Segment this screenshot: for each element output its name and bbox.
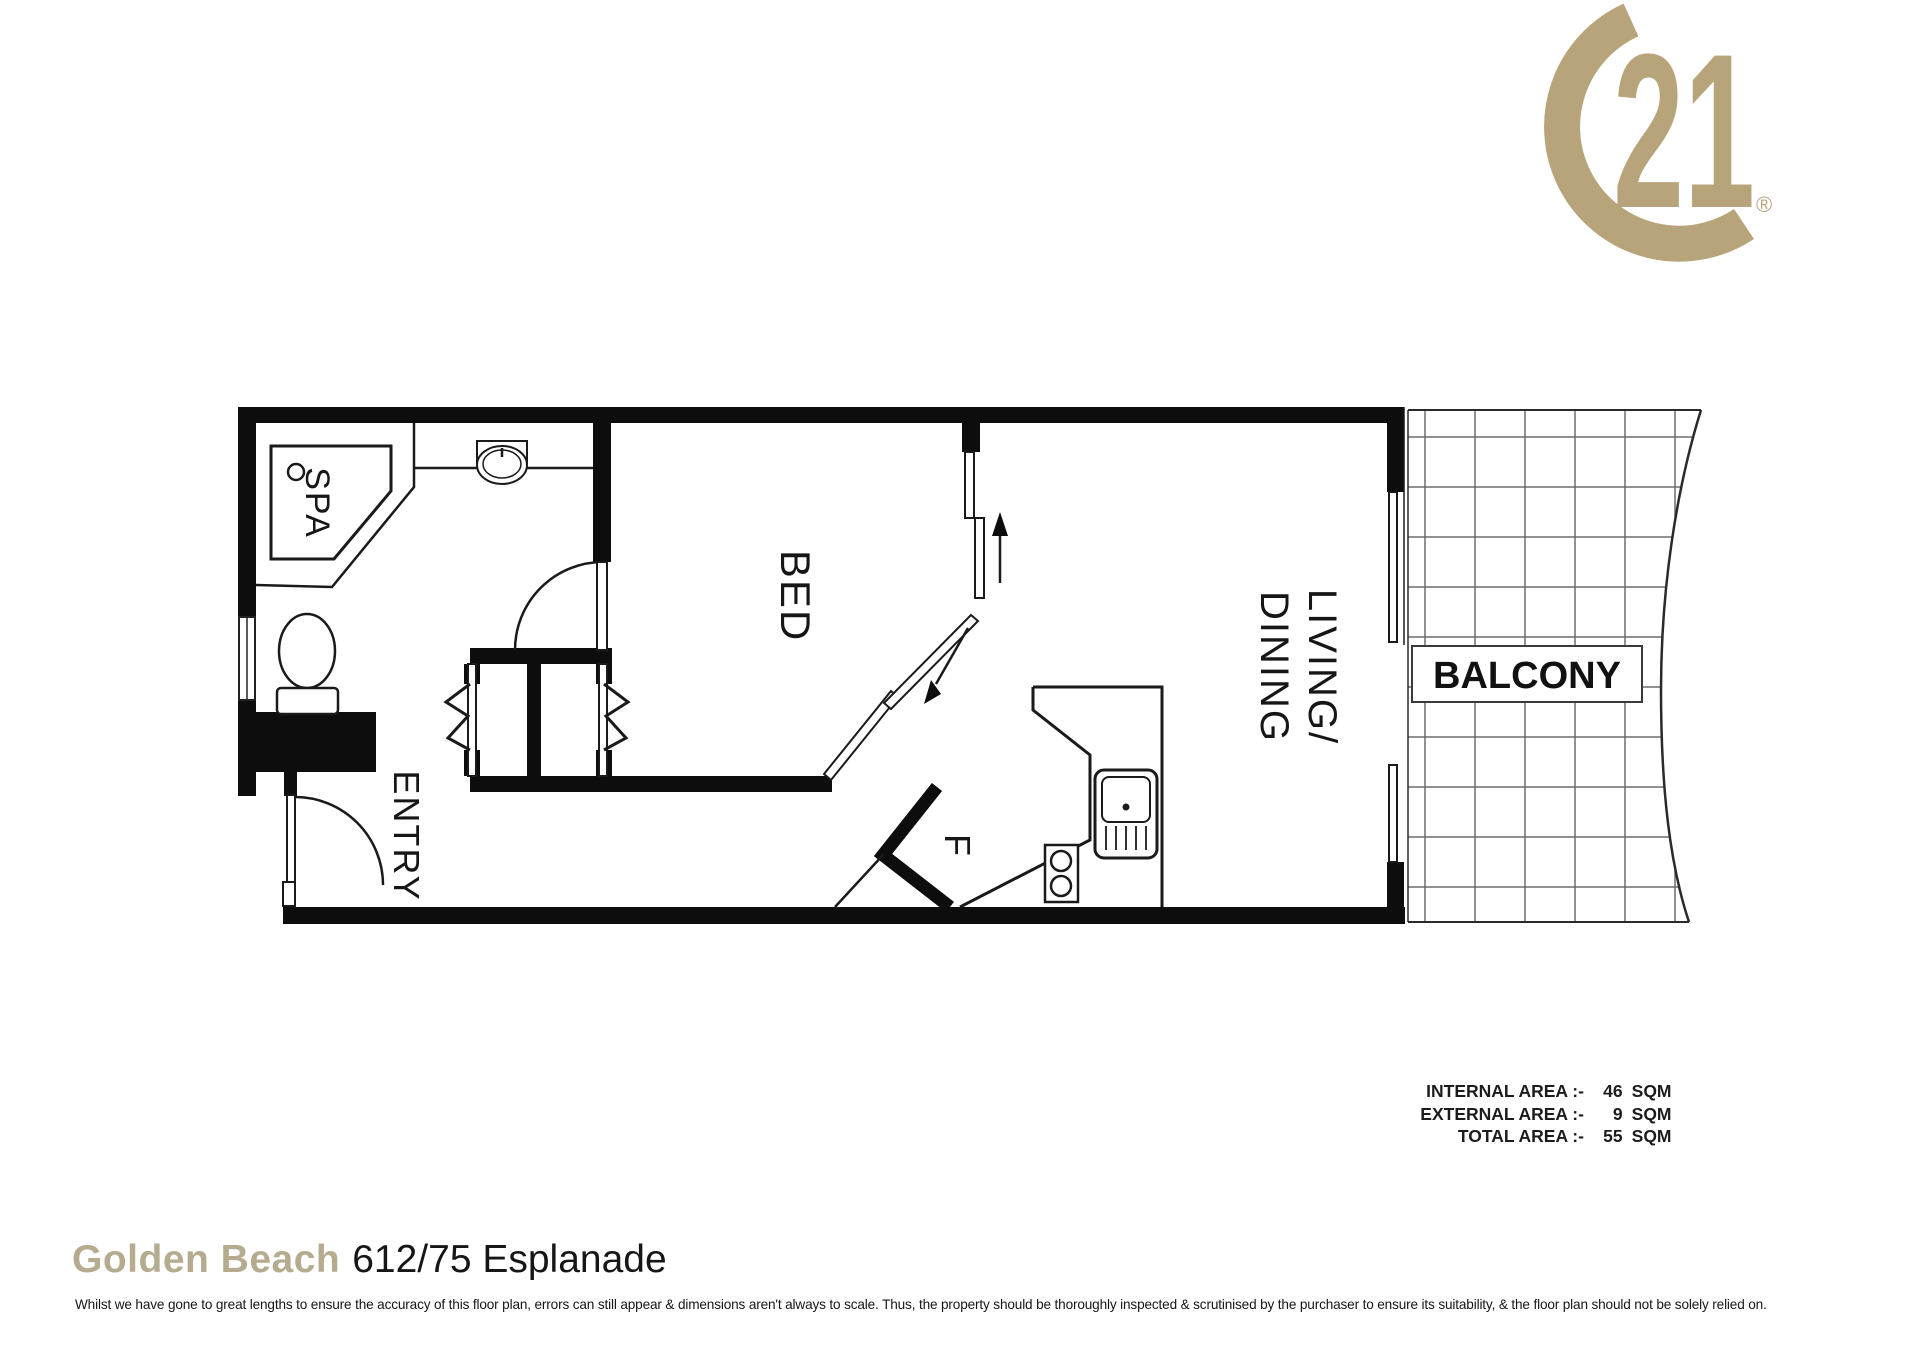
room-label-living-line1: LIVING/ xyxy=(1300,589,1344,745)
toilet xyxy=(277,614,338,714)
disclaimer-text: Whilst we have gone to great lengths to … xyxy=(75,1297,1865,1312)
bathroom-sink xyxy=(477,441,527,484)
area-value: 9 xyxy=(1584,1103,1623,1126)
street-address: 612/75 Esplanade xyxy=(352,1238,666,1282)
room-label-entry: ENTRY xyxy=(386,770,427,901)
arrow-up-icon xyxy=(992,512,1008,536)
balcony-door-lower xyxy=(1389,765,1397,862)
floorplan-svg: BALCONY xyxy=(0,0,1919,1356)
area-label: TOTAL AREA :- xyxy=(1405,1125,1584,1148)
room-label-spa: SPA xyxy=(298,467,336,539)
room-label-fridge: F xyxy=(937,834,978,858)
sliding-door-bed-living xyxy=(965,452,1008,598)
area-label: EXTERNAL AREA :- xyxy=(1405,1103,1584,1126)
area-value: 55 xyxy=(1584,1125,1623,1148)
listing-title: Golden Beach 612/75 Esplanade xyxy=(72,1238,667,1282)
area-summary: INTERNAL AREA :- 46 SQM EXTERNAL AREA :-… xyxy=(1405,1080,1680,1148)
balcony-area: BALCONY xyxy=(1408,410,1701,922)
entry-door xyxy=(283,795,383,906)
area-unit: SQM xyxy=(1632,1080,1680,1103)
bathroom-window xyxy=(239,617,255,700)
room-label-bed: BED xyxy=(772,550,819,642)
floorplan-page: BALCONY xyxy=(0,0,1919,1356)
room-label-living-line2: DINING xyxy=(1252,591,1296,743)
area-row-internal: INTERNAL AREA :- 46 SQM xyxy=(1405,1080,1680,1103)
faucet-dot-icon xyxy=(1123,804,1130,811)
area-label: INTERNAL AREA :- xyxy=(1405,1080,1584,1103)
area-row-external: EXTERNAL AREA :- 9 SQM xyxy=(1405,1103,1680,1126)
suburb-name: Golden Beach xyxy=(72,1238,340,1282)
bathroom-door xyxy=(515,562,607,650)
logo-21-text: 21 xyxy=(1613,8,1755,254)
area-unit: SQM xyxy=(1632,1103,1680,1126)
century21-logo: 21 ® xyxy=(1562,8,1772,254)
area-unit: SQM xyxy=(1632,1125,1680,1148)
kitchen-sink xyxy=(1095,770,1157,858)
registered-mark-icon: ® xyxy=(1756,192,1772,217)
arrow-down-left-icon xyxy=(924,680,941,704)
fridge-nook xyxy=(835,787,950,907)
area-row-total: TOTAL AREA :- 55 SQM xyxy=(1405,1125,1680,1148)
room-label-balcony: BALCONY xyxy=(1433,655,1621,697)
area-value: 46 xyxy=(1584,1080,1623,1103)
cooktop xyxy=(1045,845,1078,902)
sliding-door-diagonal xyxy=(824,615,978,780)
